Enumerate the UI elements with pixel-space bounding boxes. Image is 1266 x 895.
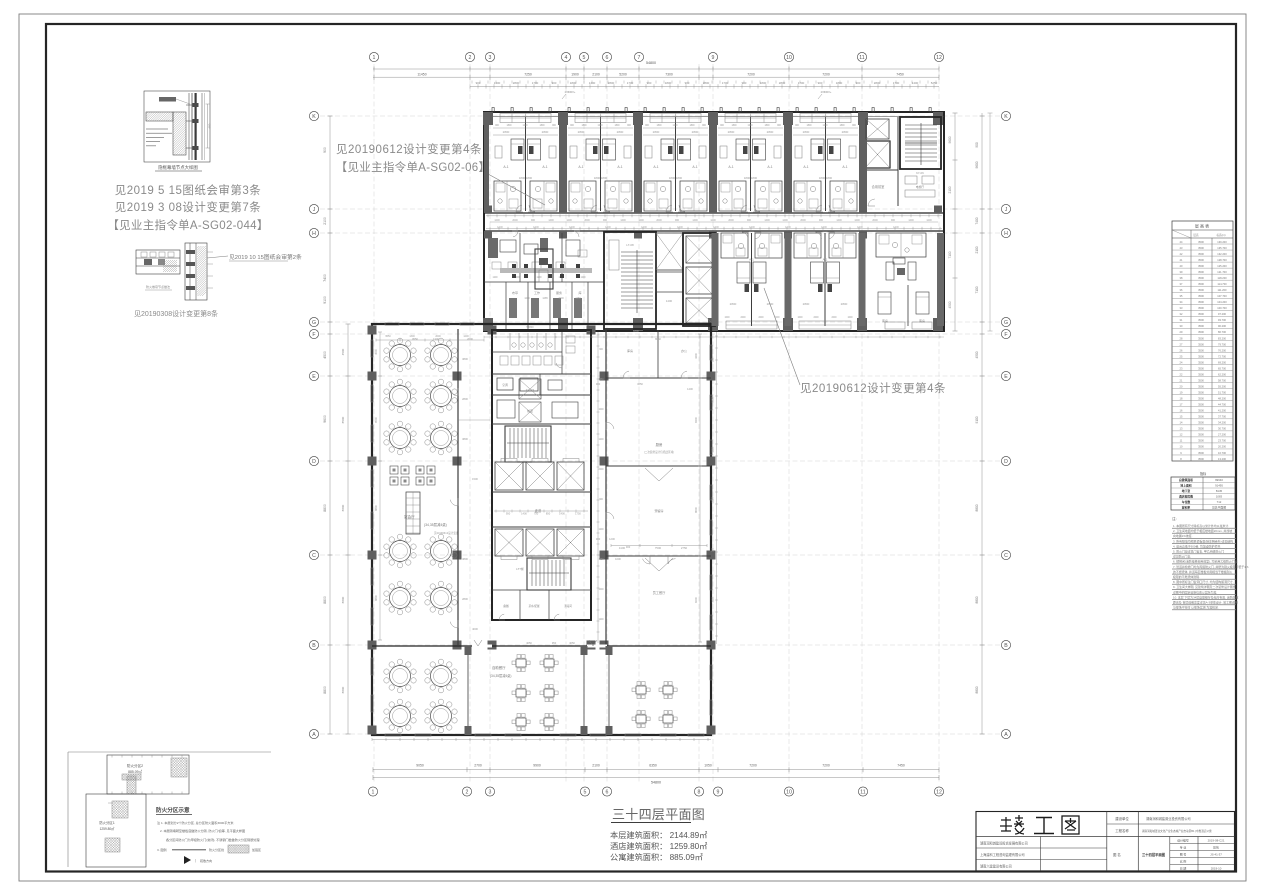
svg-text:1800 1800: 1800 1800 [669,176,683,180]
svg-text:3800: 3800 [462,557,468,561]
svg-text:1800: 1800 [689,125,695,127]
svg-text:3500: 3500 [1198,258,1204,262]
svg-text:300: 300 [596,382,601,386]
svg-text:8. 图中所标注门窗洞口尺寸, 均为结构留洞尺寸.: 8. 图中所标注门窗洞口尺寸, 均为结构留洞尺寸. [1173,579,1234,584]
svg-text:9. 卫生间大样图, 见建筑详图及二次装修设计图纸: 9. 卫生间大样图, 见建筑详图及二次装修设计图纸 [1173,584,1236,589]
svg-text:见2019 10 15图纸会审第2条: 见2019 10 15图纸会审第2条 [229,253,302,261]
svg-text:疏散方向: 疏散方向 [200,858,212,863]
svg-text:7200: 7200 [747,73,755,77]
svg-text:4500: 4500 [374,349,378,355]
svg-text:1: 1 [372,790,375,796]
svg-text:1800 1800: 1800 1800 [594,176,608,180]
svg-text:8800: 8800 [975,504,979,511]
svg-text:1200: 1200 [580,277,586,279]
svg-text:防火分区示意: 防火分区示意 [156,806,190,814]
svg-text:2000: 2000 [872,219,878,222]
svg-text:3500: 3500 [1198,282,1204,286]
svg-text:1285: 1285 [542,297,548,300]
svg-text:1300: 1300 [409,335,415,338]
svg-text:7500: 7500 [655,546,662,550]
svg-text:1200: 1200 [598,439,604,441]
svg-text:7. 管道井检修门均为丙级防火门, 井壁为耐火极限不低于1: 7. 管道井检修门均为丙级防火门, 井壁为耐火极限不低于1 h [1173,564,1249,569]
svg-text:G: G [312,320,316,326]
svg-text:见2019 3 08设计变更第7条: 见2019 3 08设计变更第7条 [115,200,262,214]
svg-text:J: J [313,207,316,213]
svg-text:3500: 3500 [1198,391,1204,395]
svg-text:1800: 1800 [665,81,672,85]
svg-text:8800: 8800 [341,686,345,693]
svg-text:54800: 54800 [646,61,656,65]
svg-text:1000: 1000 [558,297,564,300]
svg-text:7400: 7400 [975,217,979,224]
svg-text:7100: 7100 [948,251,952,258]
svg-text:3250: 3250 [637,382,643,386]
svg-text:3500: 3500 [1198,385,1204,389]
svg-text:C: C [312,553,316,559]
svg-text:E: E [312,374,316,380]
svg-text:93.700: 93.700 [1218,318,1226,322]
svg-text:128.700: 128.700 [1217,258,1227,262]
svg-text:65.700: 65.700 [1218,366,1226,370]
svg-text:2: 2 [469,55,472,61]
svg-text:8500: 8500 [374,417,378,423]
svg-text:A-1: A-1 [653,165,658,169]
svg-text:27.200: 27.200 [1218,433,1226,437]
svg-text:A: A [312,732,316,738]
svg-text:1400: 1400 [764,219,770,222]
svg-text:3500: 3500 [1198,270,1204,274]
svg-text:合用前室: 合用前室 [872,184,885,189]
svg-text:上海建科工程咨询监理有限公司: 上海建科工程咨询监理有限公司 [980,852,1025,857]
svg-text:885.09㎡: 885.09㎡ [128,769,142,774]
svg-text:300: 300 [712,547,715,552]
svg-text:1800: 1800 [839,125,845,127]
svg-text:8: 8 [698,790,701,796]
svg-text:1400: 1400 [589,81,596,85]
svg-text:2800: 2800 [513,81,520,85]
svg-text:8145: 8145 [1216,489,1223,493]
svg-text:1700: 1700 [798,81,805,85]
svg-text:办公: 办公 [681,348,687,353]
svg-text:4. 窗台高低于900者, 均加设防护栏杆.: 4. 窗台高低于900者, 均加设防护栏杆. [1173,543,1221,548]
svg-text:详图中的固定设施位置以实际为准.: 详图中的固定设施位置以实际为准. [1173,589,1217,594]
svg-text:51.700: 51.700 [1218,391,1226,395]
svg-text:1000: 1000 [847,317,853,319]
svg-text:地下室: 地下室 [1182,489,1191,493]
svg-text:111.200: 111.200 [1218,288,1228,292]
svg-text:酒店建筑面积： 1259.80㎡: 酒店建筑面积： 1259.80㎡ [610,841,707,851]
svg-text:3500: 3500 [1198,348,1204,352]
svg-text:1800 1800: 1800 1800 [744,176,758,180]
svg-text:7450: 7450 [896,73,904,77]
svg-text:消毒间: 消毒间 [564,604,572,608]
svg-text:4500: 4500 [341,348,345,355]
svg-text:H: H [1004,231,1008,237]
svg-text:见20190612设计变更第4条: 见20190612设计变更第4条 [336,142,482,156]
svg-text:建筑: 建筑 [1213,845,1219,850]
svg-text:3. 所有隔墙均砌至梁板底(除注明者外)详见结构.: 3. 所有隔墙均砌至梁板底(除注明者外)详见结构. [1173,538,1234,543]
svg-text:2750: 2750 [681,546,688,550]
svg-text:3500: 3500 [1198,252,1204,256]
svg-text:2800: 2800 [542,130,549,134]
svg-text:距离及 首层疏散宽度详见A-3单体设计, 竣工图说明: 距离及 首层疏散宽度详见A-3单体设计, 竣工图说明 [1173,600,1238,605]
svg-text:1200: 1200 [492,277,498,279]
svg-text:9600: 9600 [948,136,952,143]
svg-text:F: F [1004,332,1007,338]
svg-text:650: 650 [208,123,212,128]
svg-text:1050: 1050 [704,764,712,768]
svg-text:121.700: 121.700 [1217,270,1227,274]
svg-text:1700: 1700 [722,81,729,85]
svg-text:本层建筑面积： 2144.89㎡: 本层建筑面积： 2144.89㎡ [610,830,707,840]
svg-text:3500: 3500 [1198,445,1204,449]
svg-text:37.700: 37.700 [1218,415,1226,419]
svg-text:1650: 1650 [598,379,604,381]
svg-text:2800: 2800 [462,397,468,401]
svg-text:布草: 布草 [512,290,518,295]
svg-text:2800: 2800 [503,130,510,134]
svg-text:2800: 2800 [728,130,735,134]
svg-text:(二次装修设计包括此区域): (二次装修设计包括此区域) [644,450,674,454]
svg-text:1200: 1200 [854,219,860,222]
svg-text:1200: 1200 [782,219,788,222]
svg-text:8800: 8800 [975,596,979,603]
svg-text:三十四层平面图: 三十四层平面图 [1142,852,1166,857]
svg-text:9: 9 [717,790,720,796]
svg-text:工作: 工作 [534,290,540,295]
svg-text:防火卷帘节点做法: 防火卷帘节点做法 [146,284,170,289]
svg-text:2000: 2000 [435,335,441,338]
svg-text:2000: 2000 [728,219,734,222]
svg-text:库: 库 [578,290,581,295]
svg-text:11450: 11450 [417,73,426,77]
svg-text:1800: 1800 [764,125,770,127]
svg-text:850: 850 [546,512,551,516]
svg-text:3500: 3500 [1198,342,1204,346]
svg-text:4500: 4500 [948,301,952,308]
svg-text:2800: 2800 [842,130,849,134]
svg-text:1200: 1200 [536,277,542,279]
svg-text:7: 7 [638,55,641,61]
svg-text:2100: 2100 [592,764,600,768]
svg-text:2800: 2800 [803,130,810,134]
svg-text:3500: 3500 [1198,306,1204,310]
svg-text:1800: 1800 [806,125,812,127]
svg-text:3500: 3500 [1198,294,1204,298]
svg-text:H: H [312,231,316,237]
svg-text:950: 950 [506,512,511,516]
svg-text:9050: 9050 [416,764,424,768]
svg-text:1800: 1800 [836,81,843,85]
svg-text:900: 900 [647,81,652,85]
svg-text:见20190612设计变更第4条: 见20190612设计变更第4条 [800,381,946,395]
svg-text:隐框幕墙节点大样图: 隐框幕墙节点大样图 [158,164,198,171]
svg-text:4050: 4050 [569,641,575,645]
svg-text:1200: 1200 [598,619,604,621]
svg-text:自助餐厅: 自助餐厅 [492,665,506,670]
svg-text:1800: 1800 [614,125,620,127]
svg-text:2800: 2800 [779,81,786,85]
svg-text:10: 10 [786,790,792,796]
svg-text:公寓建筑面积： 885.09㎡: 公寓建筑面积： 885.09㎡ [610,852,703,862]
svg-text:图 号: 图 号 [1180,852,1187,857]
svg-text:4400: 4400 [694,353,698,359]
svg-text:1200: 1200 [710,219,716,222]
svg-text:2000: 2000 [712,497,715,503]
svg-text:900: 900 [552,81,557,85]
svg-text:1000: 1000 [724,317,730,319]
svg-text:1200: 1200 [672,125,678,127]
svg-text:54800: 54800 [651,781,661,785]
svg-text:【见业主指令单A-SG02-06】: 【见业主指令单A-SG02-06】 [336,160,491,174]
svg-text:135.700: 135.700 [1217,246,1227,250]
svg-text:4500: 4500 [975,351,979,358]
svg-text:专 业: 专 业 [1180,845,1187,850]
svg-text:300: 300 [712,357,715,362]
svg-text:300: 300 [626,545,631,549]
svg-text:8050: 8050 [655,337,661,341]
svg-text:3500: 3500 [1198,397,1204,401]
svg-text:B: B [1004,643,1008,649]
svg-text:3500: 3500 [1198,324,1204,328]
svg-text:1200: 1200 [566,219,572,222]
svg-text:3800: 3800 [462,357,468,361]
svg-text:J: J [1005,207,1008,213]
svg-text:23.700: 23.700 [1218,439,1226,443]
svg-text:9: 9 [712,55,715,61]
svg-text:86.700: 86.700 [1218,330,1226,334]
svg-text:4050: 4050 [526,641,532,645]
svg-text:向地漏1%坡度.: 向地漏1%坡度. [1173,533,1193,538]
svg-text:2. 卫生间地面均低于相应楼地面20mm, 并找坡: 2. 卫生间地面均低于相应楼地面20mm, 并找坡 [1173,528,1232,533]
svg-text:1200: 1200 [524,297,530,300]
svg-text:107.700: 107.700 [1217,294,1227,298]
svg-text:5250: 5250 [931,81,938,85]
svg-text:1400: 1400 [908,219,914,222]
svg-text:100.700: 100.700 [1217,306,1227,310]
svg-text:湖南润和城建置业投资有限公司: 湖南润和城建置业投资有限公司 [1146,816,1191,821]
svg-text:9100: 9100 [323,296,327,304]
svg-text:LT-08: LT-08 [626,243,634,247]
svg-text:3500: 3500 [1198,378,1204,382]
svg-text:2800: 2800 [767,130,774,134]
svg-text:F: F [312,332,315,338]
svg-text:E: E [1004,374,1008,380]
svg-text:〕: 〕 [195,858,198,863]
svg-text:1700: 1700 [893,81,900,85]
svg-text:125.200: 125.200 [1217,264,1227,268]
svg-text:6: 6 [606,55,609,61]
svg-text:8800: 8800 [374,595,378,601]
svg-text:详见防火门表.: 详见防火门表. [1173,554,1191,559]
svg-text:2000: 2000 [813,317,819,319]
svg-text:8800: 8800 [323,686,327,694]
svg-text:1200: 1200 [494,219,500,222]
svg-text:132.200: 132.200 [1217,252,1227,256]
svg-text:900: 900 [819,219,824,222]
svg-text:与现场不符时 以现场实测 为准核定.: 与现场不符时 以现场实测 为准核定. [1173,605,1219,610]
svg-text:服务: 服务 [556,290,562,295]
svg-text:2100: 2100 [948,186,952,193]
svg-text:712: 712 [1217,500,1222,504]
svg-text:1000: 1000 [615,557,621,561]
svg-text:950: 950 [552,641,557,645]
svg-text:1000: 1000 [598,589,604,591]
svg-text:2100: 2100 [323,217,327,225]
svg-text:67-06: 67-06 [916,171,924,175]
svg-text:2800: 2800 [874,81,881,85]
svg-text:3500: 3500 [1198,372,1204,376]
svg-text:1650: 1650 [712,397,715,403]
svg-text:3500: 3500 [1198,409,1204,413]
svg-text:3500: 3500 [1198,318,1204,322]
svg-text:2X600X+: 2X600X+ [821,90,832,94]
svg-text:建设单位: 建设单位 [1115,816,1129,821]
svg-text:3500: 3500 [1198,421,1204,425]
svg-text:2800: 2800 [653,130,660,134]
svg-text:比 例: 比 例 [1180,858,1187,863]
svg-text:湖南六建建设有限公司: 湖南六建建设有限公司 [980,864,1012,869]
svg-text:2019-10: 2019-10 [1211,866,1222,870]
svg-text:K: K [1004,114,1008,120]
svg-text:防火分区线: 防火分区线 [209,847,224,852]
svg-text:D: D [1004,459,1008,465]
svg-text:LT7梯: LT7梯 [516,567,524,571]
svg-text:防火分区2: 防火分区2 [127,763,143,768]
svg-text:3500: 3500 [1198,264,1204,268]
svg-text:1400: 1400 [687,387,693,391]
svg-text:2000: 2000 [656,219,662,222]
svg-text:1800 1800: 1800 1800 [519,176,533,180]
svg-text:层高: 层高 [1193,233,1199,237]
svg-text:的不燃烧体, 井道每层楼板处用相当于楼板耐火: 的不燃烧体, 井道每层楼板处用相当于楼板耐火 [1173,569,1233,574]
svg-text:1: 1 [373,55,376,61]
svg-text:1400: 1400 [548,219,554,222]
svg-text:2. 本层隔墙砌至楼板底做防火分隔, 防火门/窗等, 见平面: 2. 本层隔墙砌至楼板底做防火分隔, 防火门/窗等, 见平面大样图 [160,828,245,833]
svg-text:1300: 1300 [494,81,501,85]
svg-text:3500: 3500 [1198,360,1204,364]
svg-text:B: B [312,643,316,649]
svg-text:2000: 2000 [800,219,806,222]
svg-text:4500: 4500 [323,351,327,359]
svg-text:2000: 2000 [831,317,837,319]
svg-text:20.200: 20.200 [1218,445,1226,449]
svg-text:1800: 1800 [656,125,662,127]
svg-text:3500: 3500 [1198,300,1204,304]
svg-text:2800: 2800 [803,302,810,306]
svg-text:2800: 2800 [462,597,468,601]
svg-text:1200: 1200 [597,125,603,127]
svg-text:A-1: A-1 [578,165,583,169]
svg-text:1700: 1700 [627,81,634,85]
svg-text:2800: 2800 [578,130,585,134]
svg-text:1650: 1650 [598,559,604,561]
svg-text:900: 900 [675,219,680,222]
svg-text:A-1: A-1 [749,258,754,262]
svg-text:A: A [1004,732,1008,738]
svg-text:5: 5 [583,55,586,61]
svg-text:【见业主指令单A-SG02-044】: 【见业主指令单A-SG02-044】 [107,218,268,232]
svg-text:1800: 1800 [539,125,545,127]
svg-text:2000: 2000 [512,219,518,222]
svg-text:2800: 2800 [841,302,848,306]
svg-text:11: 11 [860,790,865,796]
svg-text:库房: 库房 [627,348,633,353]
svg-text:48.200: 48.200 [1218,397,1226,401]
svg-text:5. 防火门窗详见门窗表, 甲乙丙级防火门: 5. 防火门窗详见门窗表, 甲乙丙级防火门 [1173,549,1224,554]
svg-text:指标: 指标 [1200,471,1207,476]
svg-text:1800: 1800 [570,81,577,85]
svg-text:55.200: 55.200 [1218,385,1226,389]
svg-text:3500: 3500 [1198,288,1204,292]
svg-text:3800: 3800 [462,437,468,441]
svg-text:900: 900 [891,219,896,222]
svg-text:2000: 2000 [758,317,764,319]
svg-text:97.200: 97.200 [1218,312,1226,316]
svg-text:车位数: 车位数 [1182,500,1191,504]
svg-text:注 1. 本层划分2个防火分区, 总分区防火面积3000平方: 注 1. 本层划分2个防火分区, 总分区防火面积3000平方米. [157,820,234,825]
svg-text:79.700: 79.700 [1218,342,1226,346]
svg-text:K: K [312,114,316,120]
svg-text:104.200: 104.200 [1217,300,1227,304]
svg-text:7250: 7250 [524,73,532,77]
svg-text:1000: 1000 [598,409,604,411]
svg-text:2019-08-C21: 2019-08-C21 [1208,839,1225,843]
svg-text:2000: 2000 [740,317,746,319]
svg-text:1900: 1900 [571,73,579,77]
svg-text:3: 3 [489,790,492,796]
svg-text:69.200: 69.200 [1218,360,1226,364]
svg-text:4100: 4100 [619,546,626,550]
svg-text:2800: 2800 [730,302,737,306]
svg-text:1800: 1800 [633,329,639,333]
svg-text:2100: 2100 [975,246,979,253]
svg-text:1200: 1200 [609,537,615,541]
svg-text:防火分区1: 防火分区1 [99,820,115,825]
svg-text:3500: 3500 [1198,366,1204,370]
svg-text:C: C [1004,553,1008,559]
svg-text:容积率: 容积率 [1182,506,1191,510]
svg-text:见总平面图: 见总平面图 [1212,506,1226,510]
svg-text:8800: 8800 [323,504,327,512]
svg-text:5: 5 [584,790,587,796]
svg-text:湖南润和城置业文化产业生态城产业启动区B1 (中惠酒店公: 湖南润和城置业文化产业生态城产业启动区B1 (中惠酒店公寓 [1142,829,1212,833]
svg-text:1200: 1200 [522,125,528,127]
svg-text:1200: 1200 [822,125,828,127]
svg-text:2X600X+: 2X600X+ [565,90,576,94]
svg-text:厨房: 厨房 [656,442,663,447]
svg-text:茶水/配餐: 茶水/配餐 [528,604,540,608]
svg-text:三十四层平面图: 三十四层平面图 [612,807,705,822]
svg-text:300: 300 [596,537,601,541]
svg-text:A-1: A-1 [692,165,697,169]
svg-text:(34,35层减4桌): (34,35层减4桌) [490,673,511,678]
svg-text:76.200: 76.200 [1218,348,1226,352]
svg-text:1800: 1800 [506,125,512,127]
svg-text:900: 900 [603,219,608,222]
svg-text:1200: 1200 [463,335,469,338]
svg-text:58.700: 58.700 [1218,378,1226,382]
svg-text:湖南润和城建设投资发展有限公司: 湖南润和城建设投资发展有限公司 [980,841,1028,846]
svg-text:2800: 2800 [692,130,699,134]
svg-text:标高(m): 标高(m) [1216,233,1225,237]
svg-text:3: 3 [489,55,492,61]
svg-text:1400: 1400 [912,81,919,85]
svg-text:2000: 2000 [584,219,590,222]
svg-text:900: 900 [742,81,747,85]
svg-text:预留房: 预留房 [654,508,663,513]
svg-text:3500: 3500 [1198,312,1204,316]
